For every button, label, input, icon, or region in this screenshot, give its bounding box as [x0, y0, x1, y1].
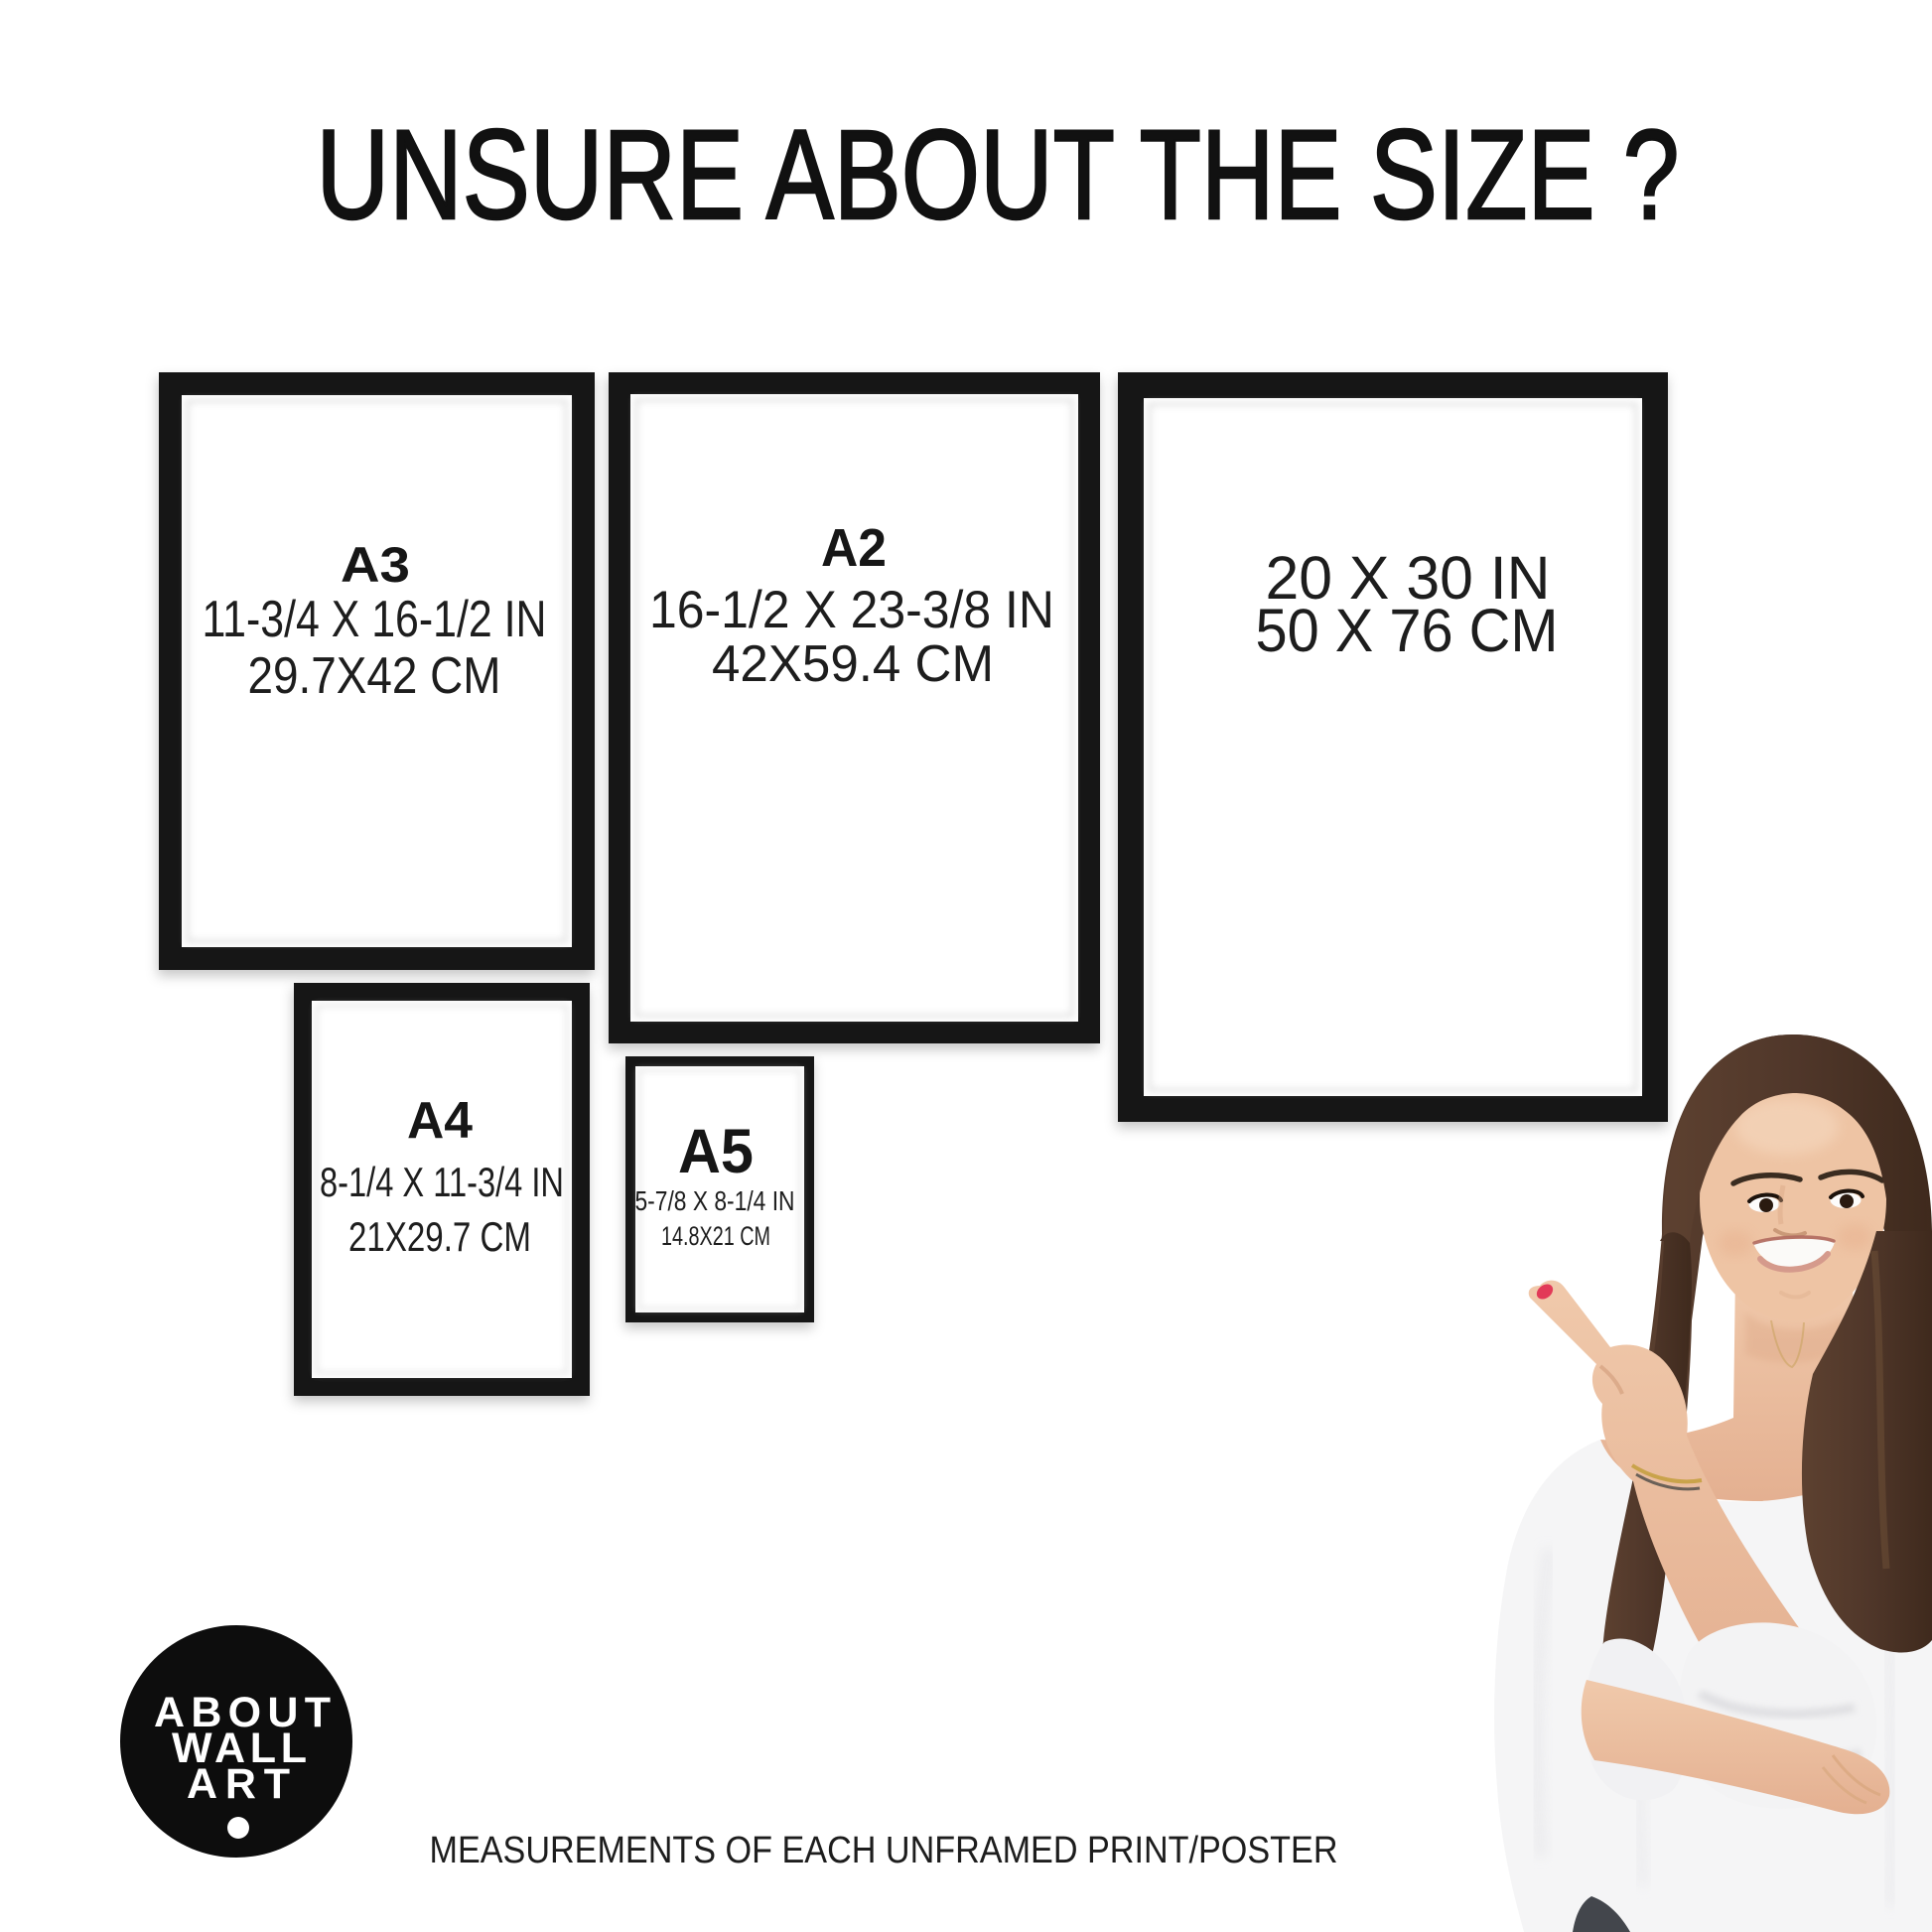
svg-text:5-7/8 X 8-1/4 IN: 5-7/8 X 8-1/4 IN [635, 1185, 795, 1216]
svg-text:A5: A5 [678, 1117, 754, 1186]
svg-text:50 X 76 CM: 50 X 76 CM [1256, 597, 1559, 664]
svg-text:11-3/4 X 16-1/2 IN: 11-3/4 X 16-1/2 IN [203, 591, 547, 648]
svg-text:A2: A2 [821, 518, 887, 578]
svg-text:21X29.7 CM: 21X29.7 CM [348, 1213, 531, 1260]
svg-text:A4: A4 [407, 1092, 473, 1150]
svg-text:MEASUREMENTS OF EACH UNFRAMED: MEASUREMENTS OF EACH UNFRAMED PRINT/POST… [430, 1830, 1338, 1871]
svg-text:UNSURE ABOUT THE SIZE ?: UNSURE ABOUT THE SIZE ? [317, 104, 1680, 246]
svg-text:A3: A3 [341, 537, 410, 593]
svg-text:16-1/2 X 23-3/8 IN: 16-1/2 X 23-3/8 IN [649, 581, 1054, 639]
svg-text:42X59.4 CM: 42X59.4 CM [712, 635, 994, 693]
svg-text:8-1/4 X 11-3/4 IN: 8-1/4 X 11-3/4 IN [320, 1159, 564, 1205]
svg-text:29.7X42 CM: 29.7X42 CM [248, 647, 501, 705]
svg-text:ART: ART [187, 1760, 290, 1808]
svg-text:14.8X21 CM: 14.8X21 CM [661, 1221, 770, 1251]
